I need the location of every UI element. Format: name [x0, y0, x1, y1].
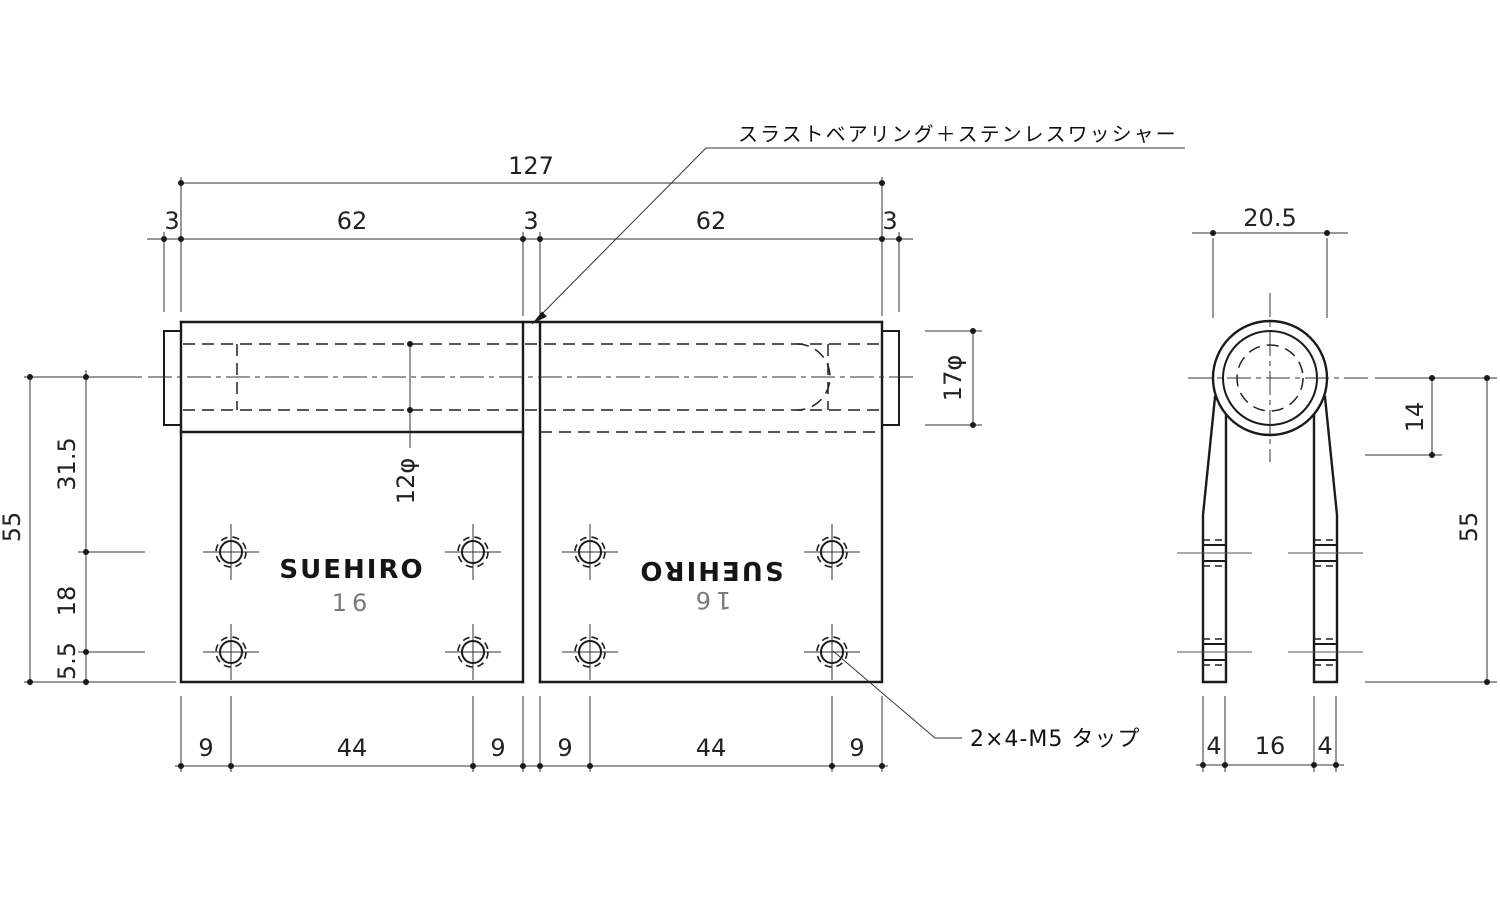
dim-side-height: 55 [1455, 512, 1483, 543]
dimension-lines-side [1192, 233, 1487, 765]
dimension-texts-side: 20.5 14 55 4 16 4 [1206, 204, 1483, 760]
brand-logo-rotated: SUEHIRO [638, 555, 783, 585]
screw-hole [804, 624, 860, 680]
dim-bottom-seg-1: 9 [198, 734, 213, 762]
screw-hole [562, 524, 618, 580]
screw-hole [203, 524, 259, 580]
screw-holes-front [203, 524, 860, 680]
leg-hole-marks [1177, 540, 1363, 665]
screw-hole [445, 624, 501, 680]
knuckle-section [1188, 293, 1368, 462]
dimension-texts-front: 127 3 62 3 62 3 55 31.5 18 5.5 17φ 12φ 9… [0, 152, 967, 762]
model-number-rotated: 16 [691, 586, 732, 614]
dim-side-bottom-2: 16 [1255, 732, 1286, 760]
tap-note-text: 2×4-M5 タップ [970, 727, 1140, 752]
screw-hole [562, 624, 618, 680]
dim-bottom-seg-5: 44 [696, 734, 727, 762]
screw-hole [804, 524, 860, 580]
dim-overall-height: 55 [0, 512, 26, 543]
hinge-body-outline [148, 322, 918, 682]
dim-overall-width: 127 [508, 152, 554, 180]
pin-cap-right [882, 331, 899, 425]
dim-side-bottom-3: 4 [1317, 732, 1332, 760]
dim-center-offset: 14 [1401, 402, 1429, 433]
screw-hole [203, 624, 259, 680]
dimension-dots-front [27, 180, 976, 769]
hinge-technical-drawing: SUEHIRO 16 SUEHIRO 16 [0, 0, 1500, 900]
front-view: SUEHIRO 16 SUEHIRO 16 [0, 122, 1185, 772]
leader-bearing-note: スラストベアリング＋ステンレスワッシャー [532, 122, 1185, 324]
pin-cap-left [164, 331, 181, 425]
dim-bottom-seg-3: 9 [490, 734, 505, 762]
dim-left-seg-1: 31.5 [53, 437, 81, 490]
screw-hole [445, 524, 501, 580]
dim-bottom-seg-4: 9 [557, 734, 572, 762]
brand-logo: SUEHIRO [279, 555, 424, 585]
dim-top-seg-1: 3 [164, 207, 179, 235]
leg-holes-edges [1203, 545, 1337, 660]
dim-side-bottom-1: 4 [1206, 732, 1221, 760]
dim-bottom-seg-6: 9 [849, 734, 864, 762]
leg-holes-centerlines [1177, 553, 1363, 652]
brand-marking-left: SUEHIRO 16 [279, 555, 424, 617]
bearing-note-text: スラストベアリング＋ステンレスワッシャー [738, 122, 1178, 146]
model-number: 16 [332, 589, 373, 617]
dim-top-seg-3: 3 [523, 207, 538, 235]
leader-line-tap [833, 651, 962, 738]
dim-barrel-dia: 17φ [939, 355, 967, 401]
dim-bore-dia: 12φ [392, 458, 420, 504]
dim-bottom-seg-2: 44 [337, 734, 368, 762]
leg-holes-hidden [1203, 540, 1337, 665]
extension-lines-side [1203, 238, 1497, 772]
dimension-dots-side [1200, 230, 1490, 768]
leader-line-bearing [532, 148, 1185, 324]
dim-top-seg-2: 62 [337, 207, 368, 235]
dim-top-seg-5: 3 [882, 207, 897, 235]
side-view: 20.5 14 55 4 16 4 [1177, 204, 1497, 772]
dim-left-seg-2: 18 [53, 586, 81, 617]
drawing-sheet: SUEHIRO 16 SUEHIRO 16 [0, 0, 1500, 900]
right-leaf-outline [540, 322, 882, 682]
leader-tap-note: 2×4-M5 タップ [833, 651, 1140, 752]
dim-top-seg-4: 62 [696, 207, 727, 235]
brand-marking-right-rotated: SUEHIRO 16 [638, 555, 783, 614]
dim-knuckle-width: 20.5 [1243, 204, 1296, 232]
left-leaf-outline [181, 322, 523, 682]
dim-left-seg-3: 5.5 [53, 642, 81, 680]
